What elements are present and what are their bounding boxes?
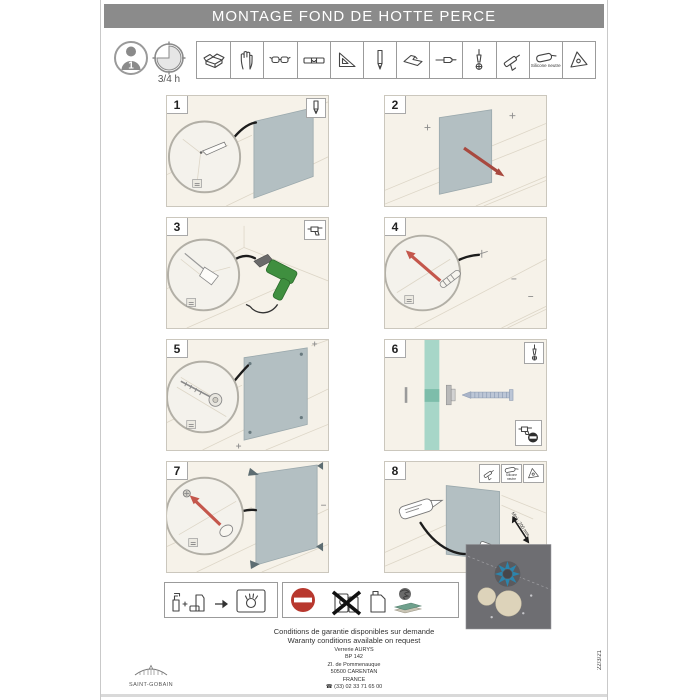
cleaning-warnings-box (282, 582, 459, 618)
triangle-spreader-icon (523, 464, 544, 483)
no-entry-icon (291, 588, 315, 612)
bridge-icon (134, 663, 168, 676)
triangle-spreader-icon (562, 42, 595, 78)
no-flammable-products-icon (333, 592, 360, 614)
burner-cap-small (478, 588, 496, 606)
phillips-screwdriver-icon (462, 42, 495, 78)
toolbox-icon (197, 42, 230, 78)
warranty-text: Conditions de garantie disponibles sur d… (101, 628, 607, 645)
drill-icon (304, 220, 326, 240)
duration-label: 3/4 h (145, 74, 193, 85)
sheet-bottom-rule (101, 694, 607, 697)
address-line: Verrerie AURYS (101, 647, 607, 654)
step-4-number: 4 (385, 218, 406, 236)
glass-panel (254, 108, 313, 198)
step-2-number: 2 (385, 96, 406, 114)
step-3-number: 3 (167, 218, 188, 236)
step-7-number: 7 (167, 462, 188, 480)
glass-panel (244, 348, 307, 440)
spirit-level-icon (297, 42, 330, 78)
gas-burner (495, 561, 521, 587)
step-4: 4 (384, 217, 547, 329)
step-2-illustration (385, 96, 546, 206)
step-8-number: 8 (385, 462, 406, 480)
steel-wool-icon (399, 588, 411, 600)
step-4-illustration (385, 218, 546, 328)
pencil-icon (306, 98, 326, 118)
person-count-icon: 1 (113, 40, 149, 76)
silicone-tube-icon: Silicone neutre (501, 464, 522, 483)
min-distance-label: Mini : 200 mm (511, 511, 531, 537)
pencil-icon (363, 42, 396, 78)
silicone-tube-icon: Silicone neutre (529, 42, 562, 78)
glove-icon (230, 42, 263, 78)
phillips-screwdriver-icon (524, 342, 544, 364)
silicone-cartridge (398, 494, 444, 520)
warranty-en: Waranty conditions available on request (101, 637, 607, 646)
duration-clock-icon (151, 40, 187, 76)
step-1-illustration (167, 96, 328, 206)
burner-cap-large (496, 591, 522, 617)
date-code: 22/3/21 (597, 650, 603, 670)
hand-wipe-icon (246, 594, 258, 608)
silicone-tube-label: Silicone neutre (503, 474, 521, 481)
step-8: 8 (384, 461, 547, 573)
glass-panel (256, 465, 317, 565)
glass-panel (439, 110, 491, 194)
step-2: 2 (384, 95, 547, 207)
cleaning-instructions-box (164, 582, 278, 618)
cleaning-products-icons (165, 583, 277, 617)
screw (462, 390, 513, 401)
brand-name: SAINT-GOBAIN (115, 682, 187, 688)
page-title: MONTAGE FOND DE HOTTE PERCE (104, 4, 604, 28)
jug-icon (371, 592, 385, 613)
power-drill (246, 254, 298, 312)
silicone-tube-label: Silicone neutre (531, 64, 561, 69)
step-7-illustration (167, 462, 328, 572)
address-line: BP 142 (101, 654, 607, 661)
instruction-sheet: MONTAGE FOND DE HOTTE PERCE 1 3/4 h (100, 0, 608, 700)
saint-gobain-logo: SAINT-GOBAIN (115, 663, 187, 688)
cleaning-warning-icons (283, 583, 458, 617)
required-tools-list: Silicone neutre (196, 41, 596, 79)
safety-glasses-icon (263, 42, 296, 78)
step-5: 5 (166, 339, 329, 451)
step-1: 1 (166, 95, 329, 207)
cutter-icon (396, 42, 429, 78)
square-ruler-icon (330, 42, 363, 78)
spacer (446, 385, 455, 405)
step-5-illustration (167, 340, 328, 450)
drill-bit-icon (429, 42, 462, 78)
step-1-number: 1 (167, 96, 188, 114)
steps-grid: 1 2 (166, 95, 547, 573)
step-6: 6 (384, 339, 547, 451)
drilled-hole (405, 387, 408, 403)
step-3: 3 (166, 217, 329, 329)
person-count: 1 (128, 61, 134, 72)
caulk-gun-icon (479, 464, 500, 483)
step-6-number: 6 (385, 340, 406, 358)
step-7: 7 (166, 461, 329, 573)
no-drill-icon (515, 420, 542, 446)
step-5-number: 5 (167, 340, 188, 358)
abrasive-sponge-icon (395, 603, 421, 613)
caulk-gun-icon (496, 42, 529, 78)
